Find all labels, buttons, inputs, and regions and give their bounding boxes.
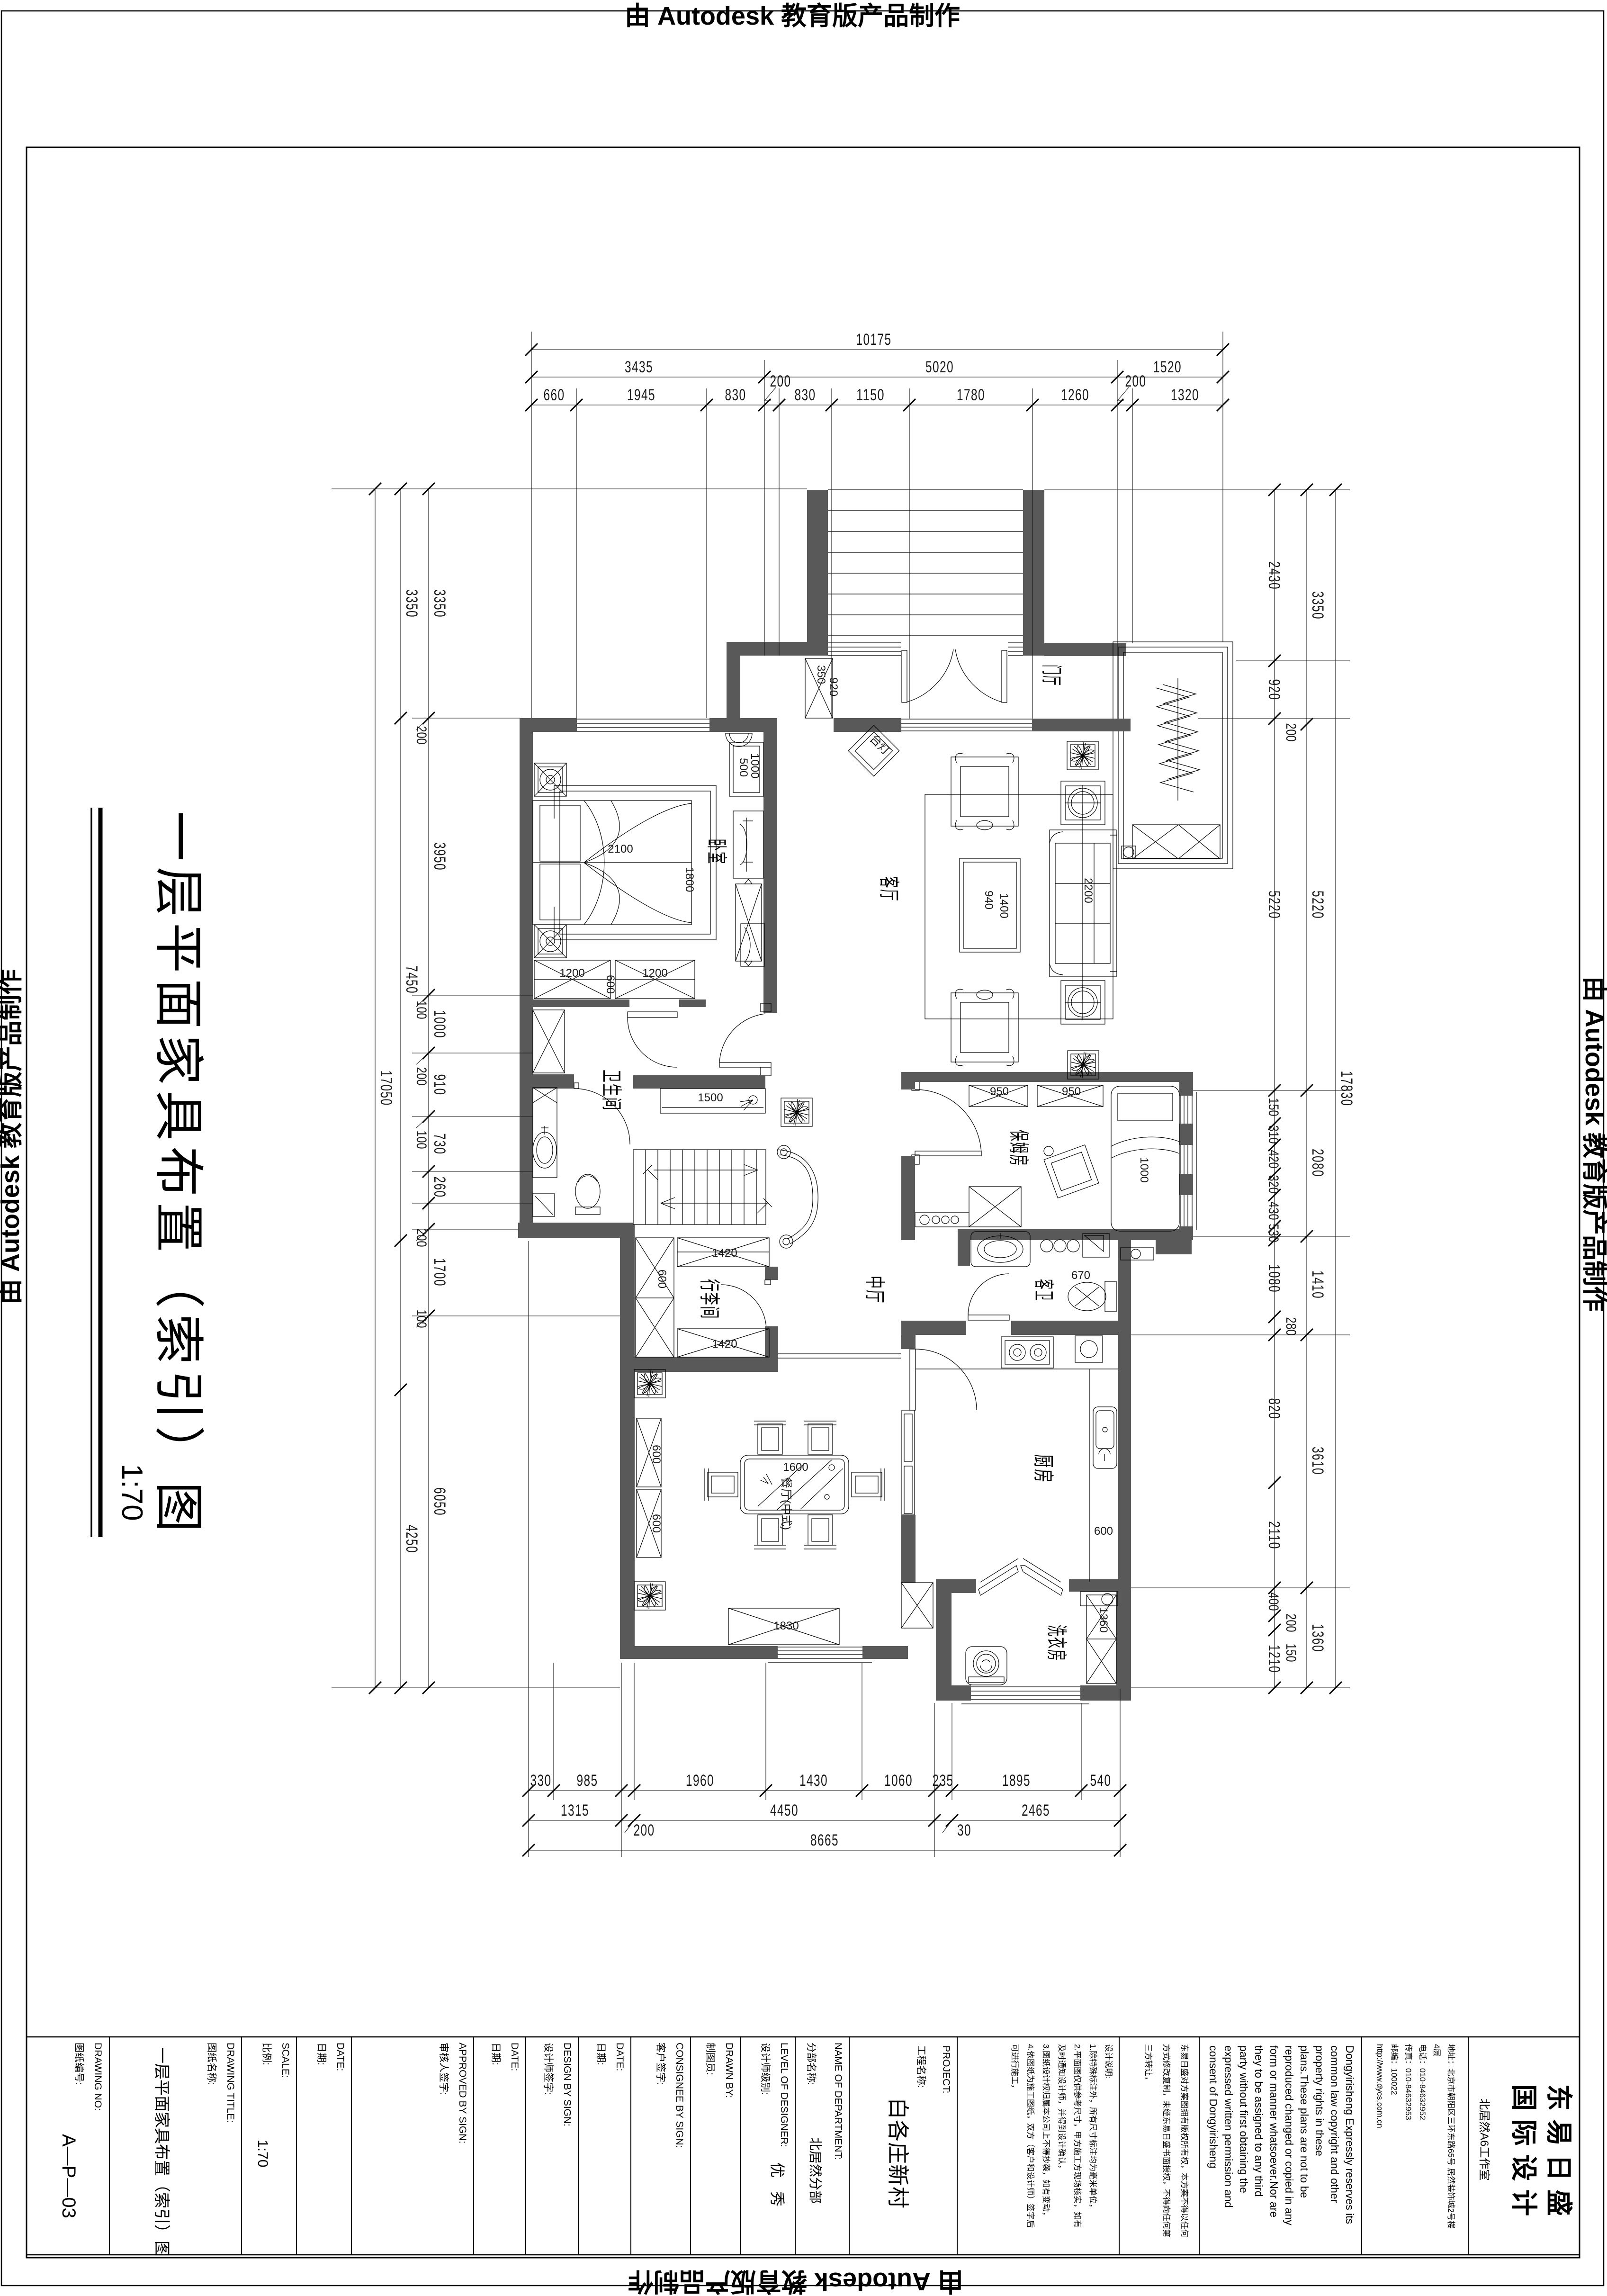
svg-text:一层平面家具布置（索引）图: 一层平面家具布置（索引）图: [153, 2047, 171, 2257]
svg-text:280: 280: [1283, 1317, 1299, 1336]
svg-text:320: 320: [1266, 1175, 1281, 1194]
svg-text:分部名称:: 分部名称:: [806, 2043, 817, 2085]
svg-text:客厅: 客厅: [877, 876, 900, 902]
svg-text:1500: 1500: [698, 1091, 723, 1104]
svg-text:3350: 3350: [431, 589, 449, 618]
svg-text:白各庄新村: 白各庄新村: [886, 2098, 910, 2209]
svg-text:1210: 1210: [1265, 1645, 1283, 1673]
svg-text:2430: 2430: [1265, 561, 1283, 590]
svg-text:1200: 1200: [642, 967, 667, 980]
svg-text:2110: 2110: [1265, 1521, 1283, 1549]
svg-text:设计说明:: 设计说明:: [1104, 2044, 1113, 2079]
svg-text:日期:: 日期:: [595, 2043, 606, 2065]
svg-text:及时通知设计师，并得到设计确认，: 及时通知设计师，并得到设计确认，: [1057, 2044, 1066, 2173]
svg-text:1830: 1830: [773, 1620, 799, 1632]
svg-text:1080: 1080: [1265, 1264, 1283, 1293]
svg-text:3610: 3610: [1309, 1447, 1327, 1475]
svg-text:DRAWING TITLE:: DRAWING TITLE:: [225, 2043, 236, 2123]
svg-text:A—P—03: A—P—03: [58, 2134, 79, 2218]
svg-text:1600: 1600: [783, 1461, 808, 1474]
svg-text:1000: 1000: [1138, 1157, 1150, 1182]
svg-text:they to be assigned to any: they to be assigned to any third: [1253, 2045, 1265, 2197]
svg-text:1200: 1200: [559, 967, 584, 980]
svg-text:APPROVED BY SIGN:: APPROVED BY SIGN:: [457, 2043, 468, 2143]
svg-text:310: 310: [1266, 1125, 1281, 1144]
svg-text:餐厅(中式): 餐厅(中式): [780, 1477, 792, 1530]
svg-text:日期:: 日期:: [490, 2043, 501, 2065]
svg-text:保姆房: 保姆房: [1007, 1130, 1030, 1167]
svg-text:common law copyright and other: common law copyright and other: [1329, 2045, 1341, 2203]
svg-text:830: 830: [795, 386, 816, 404]
svg-text:820: 820: [1265, 1398, 1283, 1420]
svg-text:DATE:: DATE:: [335, 2043, 346, 2071]
svg-text:1060: 1060: [884, 1772, 913, 1790]
svg-text:1700: 1700: [431, 1258, 449, 1287]
svg-text:3350: 3350: [403, 589, 421, 618]
svg-text:5220: 5220: [1265, 891, 1283, 919]
svg-text:730: 730: [431, 1134, 449, 1155]
svg-text:530: 530: [1266, 1224, 1281, 1243]
svg-text:985: 985: [577, 1772, 598, 1790]
svg-text:200: 200: [634, 1821, 655, 1839]
svg-text:2465: 2465: [1022, 1801, 1050, 1819]
svg-text:400: 400: [1266, 1593, 1281, 1611]
svg-text:3435: 3435: [625, 358, 653, 376]
svg-text:235: 235: [933, 1772, 954, 1790]
svg-text:DATE:: DATE:: [614, 2043, 625, 2071]
svg-text:600: 600: [650, 1514, 663, 1533]
svg-text:200: 200: [413, 726, 429, 745]
svg-text:2080: 2080: [1309, 1149, 1327, 1177]
svg-text:电话：010-84632952: 电话：010-84632952: [1418, 2044, 1427, 2120]
svg-text:200: 200: [413, 1067, 429, 1086]
svg-text:reproduced changed or copied i: reproduced changed or copied in any: [1283, 2045, 1295, 2225]
svg-text:4250: 4250: [403, 1525, 421, 1553]
svg-text:5020: 5020: [925, 358, 954, 376]
svg-text:优 秀: 优 秀: [769, 2162, 786, 2211]
svg-text:1:70: 1:70: [255, 2140, 270, 2167]
svg-text:三方转让，: 三方转让，: [1144, 2044, 1153, 2084]
svg-text:920: 920: [1265, 679, 1283, 701]
svg-text:8665: 8665: [810, 1831, 839, 1849]
svg-text:1520: 1520: [1153, 358, 1182, 376]
svg-text:由 Autodesk 教育版产品制作: 由 Autodesk 教育版产品制作: [625, 2, 960, 30]
svg-text:1.除特殊标注外，所有尺寸标注均为毫米单位，: 1.除特殊标注外，所有尺寸标注均为毫米单位，: [1088, 2044, 1097, 2212]
svg-text:1800: 1800: [683, 867, 696, 892]
svg-text:1:70: 1:70: [116, 1464, 148, 1521]
svg-text:1315: 1315: [561, 1801, 589, 1819]
svg-text:3950: 3950: [431, 842, 449, 871]
svg-text:100: 100: [413, 1001, 429, 1019]
svg-text:100: 100: [413, 1131, 429, 1149]
svg-text:LEVEL OF DESIGNER:: LEVEL OF DESIGNER:: [779, 2043, 790, 2147]
svg-text:4.依图纸为施工图纸，双方（客户和设计师）签字后: 4.依图纸为施工图纸，双方（客户和设计师）签字后: [1026, 2044, 1035, 2228]
svg-text:party without first obtaining: party without first obtaining the: [1238, 2045, 1250, 2193]
svg-text:DRAWING NO:: DRAWING NO:: [92, 2043, 103, 2111]
svg-text:200: 200: [1125, 372, 1147, 390]
svg-text:830: 830: [725, 386, 746, 404]
svg-text:SCALE:: SCALE:: [280, 2043, 291, 2078]
svg-text:150: 150: [1266, 1098, 1281, 1116]
svg-text:expressed written permission a: expressed written permission and: [1222, 2045, 1235, 2208]
svg-text:3350: 3350: [1309, 591, 1327, 620]
svg-text:CONSIGNEE BY SIGN:: CONSIGNEE BY SIGN:: [674, 2043, 685, 2148]
svg-text:950: 950: [1062, 1085, 1081, 1098]
svg-text:4层: 4层: [1432, 2044, 1441, 2056]
svg-text:东易日盛: 东易日盛: [1544, 2084, 1574, 2224]
svg-text:1000: 1000: [431, 1010, 449, 1038]
svg-text:PROJECT:: PROJECT:: [941, 2045, 952, 2094]
svg-text:由 Autodesk 教育版产品制作: 由 Autodesk 教育版产品制作: [628, 2267, 963, 2296]
svg-text:1400: 1400: [997, 893, 1010, 918]
svg-text:200: 200: [770, 372, 791, 390]
svg-text:1000: 1000: [748, 753, 761, 778]
svg-text:东易日盛对方案图拥有版权所有权，本方案不得以任何: 东易日盛对方案图拥有版权所有权，本方案不得以任何: [1180, 2044, 1189, 2237]
svg-text:北居然A6工作室: 北居然A6工作室: [1478, 2098, 1490, 2180]
svg-text:1320: 1320: [1171, 386, 1199, 404]
svg-text:方式修改复制，未经东易日盛书面授权，不得向任何第: 方式修改复制，未经东易日盛书面授权，不得向任何第: [1162, 2044, 1171, 2237]
svg-text:1945: 1945: [627, 386, 655, 404]
svg-text:consent of Dongyirisheng: consent of Dongyirisheng: [1207, 2045, 1220, 2169]
svg-text:17050: 17050: [377, 1071, 395, 1106]
svg-text:http://www.dycs.com.cn: http://www.dycs.com.cn: [1375, 2044, 1384, 2128]
svg-text:Dongyirisheng Expressly reserv: Dongyirisheng Expressly reserves its: [1344, 2045, 1356, 2224]
svg-text:地址：北京市朝阳区三环东路65号 居然装饰城2号楼: 地址：北京市朝阳区三环东路65号 居然装饰城2号楼: [1446, 2044, 1455, 2229]
svg-text:客卫: 客卫: [1032, 1279, 1055, 1302]
svg-text:NAME OF DEPARTMENT:: NAME OF DEPARTMENT:: [833, 2043, 844, 2160]
svg-text:邮编：100022: 邮编：100022: [1390, 2044, 1399, 2095]
svg-text:DATE:: DATE:: [509, 2043, 520, 2071]
svg-text:100: 100: [413, 1310, 429, 1328]
svg-text:430: 430: [1266, 1202, 1281, 1220]
svg-text:DESIGN BY SIGN:: DESIGN BY SIGN:: [562, 2043, 573, 2126]
svg-text:门厅: 门厅: [1040, 665, 1063, 686]
svg-text:国际设计: 国际设计: [1509, 2084, 1539, 2224]
svg-text:5220: 5220: [1309, 891, 1327, 919]
svg-text:660: 660: [544, 386, 565, 404]
svg-text:一层平面家具布置（索引）图: 一层平面家具布置（索引）图: [150, 811, 206, 1538]
svg-text:1260: 1260: [1061, 386, 1089, 404]
svg-text:330: 330: [530, 1772, 552, 1790]
svg-text:2200: 2200: [1082, 878, 1095, 903]
svg-text:10175: 10175: [856, 331, 892, 349]
svg-text:form or manner whatsoever.Nor: form or manner whatsoever.Nor are: [1268, 2045, 1280, 2217]
svg-text:北居然分部: 北居然分部: [808, 2137, 823, 2204]
svg-text:卫生间: 卫生间: [600, 1070, 623, 1111]
svg-text:3.图纸设计权归属本公司上不得抄袭，如有变动，: 3.图纸设计权归属本公司上不得抄袭，如有变动，: [1041, 2044, 1050, 2220]
svg-text:500: 500: [737, 758, 750, 777]
svg-text:审核人签字:: 审核人签字:: [438, 2043, 449, 2095]
svg-text:2100: 2100: [608, 843, 633, 855]
svg-text:17830: 17830: [1338, 1071, 1356, 1107]
svg-text:4450: 4450: [770, 1801, 799, 1819]
svg-text:1360: 1360: [1309, 1624, 1327, 1652]
svg-text:厨房: 厨房: [1032, 1454, 1055, 1484]
svg-text:1410: 1410: [1309, 1270, 1327, 1299]
svg-text:工程名称:: 工程名称:: [916, 2045, 926, 2088]
svg-text:比例:: 比例:: [261, 2043, 272, 2065]
svg-text:7450: 7450: [403, 965, 421, 994]
svg-text:600: 600: [604, 975, 617, 994]
svg-text:由 Autodesk 教育版产品制作: 由 Autodesk 教育版产品制作: [0, 969, 25, 1305]
svg-text:1150: 1150: [856, 386, 885, 404]
svg-text:日期:: 日期:: [316, 2043, 327, 2065]
svg-text:940: 940: [982, 891, 995, 909]
svg-text:200: 200: [1283, 1614, 1299, 1632]
svg-text:设计师级别:: 设计师级别:: [760, 2043, 771, 2095]
svg-text:1420: 1420: [712, 1338, 737, 1351]
svg-text:由 Autodesk 教育版产品制作: 由 Autodesk 教育版产品制作: [1580, 976, 1607, 1312]
svg-text:1895: 1895: [1002, 1772, 1031, 1790]
svg-text:设计师签字:: 设计师签字:: [543, 2043, 554, 2095]
svg-text:plans.These plans are not to b: plans.These plans are not to be: [1298, 2045, 1311, 2198]
svg-text:洗衣房: 洗衣房: [1045, 1625, 1068, 1662]
svg-text:卧室: 卧室: [705, 838, 728, 865]
svg-text:200: 200: [1283, 723, 1299, 742]
svg-text:950: 950: [990, 1085, 1009, 1098]
svg-text:30: 30: [957, 1821, 971, 1839]
svg-text:600: 600: [650, 1445, 663, 1464]
svg-text:DRAWN BY:: DRAWN BY:: [724, 2043, 735, 2098]
svg-text:670: 670: [1071, 1269, 1090, 1282]
svg-text:600: 600: [1094, 1525, 1113, 1538]
svg-text:图纸编号:: 图纸编号:: [73, 2043, 84, 2085]
svg-text:客户签字:: 客户签字:: [655, 2043, 666, 2085]
svg-text:2.平面图仅供参考尺寸，甲方施工方现场核实，如有: 2.平面图仅供参考尺寸，甲方施工方现场核实，如有: [1073, 2044, 1082, 2228]
svg-text:910: 910: [431, 1074, 449, 1096]
svg-text:1960: 1960: [686, 1772, 714, 1790]
svg-text:传真：010-84632953: 传真：010-84632953: [1404, 2044, 1413, 2120]
svg-text:1780: 1780: [957, 386, 985, 404]
svg-text:350: 350: [815, 665, 827, 684]
svg-text:200: 200: [413, 1229, 429, 1247]
svg-text:6050: 6050: [431, 1487, 449, 1516]
svg-text:可进行施工，: 可进行施工，: [1010, 2044, 1019, 2092]
svg-text:图纸名称:: 图纸名称:: [206, 2043, 217, 2085]
svg-text:540: 540: [1090, 1772, 1112, 1790]
svg-text:中厅: 中厅: [863, 1276, 886, 1304]
svg-text:制图员:: 制图员:: [705, 2043, 716, 2075]
svg-text:1430: 1430: [799, 1772, 828, 1790]
svg-text:600: 600: [655, 1270, 668, 1288]
svg-text:1420: 1420: [712, 1247, 737, 1260]
svg-text:行李间: 行李间: [698, 1279, 721, 1320]
svg-text:260: 260: [431, 1177, 449, 1198]
svg-text:property rights in these: property rights in these: [1313, 2045, 1326, 2156]
svg-text:420: 420: [1266, 1150, 1281, 1169]
svg-text:920: 920: [827, 677, 840, 696]
svg-text:150: 150: [1283, 1644, 1299, 1662]
svg-text:1360: 1360: [1097, 1607, 1110, 1632]
